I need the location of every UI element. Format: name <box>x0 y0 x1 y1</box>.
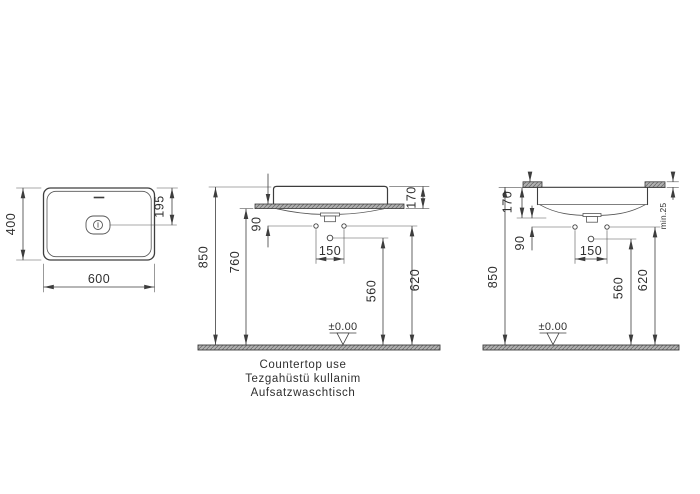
dim-620: 620 <box>408 269 422 291</box>
countertop-left <box>523 182 542 188</box>
caption-line-en: Countertop use <box>259 359 346 371</box>
dim-620: 620 <box>636 269 650 291</box>
countertop <box>255 204 404 209</box>
dim-760: 760 <box>228 251 242 273</box>
basin-body <box>274 186 388 204</box>
fixing-hole-left <box>314 224 318 228</box>
fixing-hole-right <box>342 224 346 228</box>
drain-body <box>587 217 598 223</box>
datum-symbol <box>337 333 349 345</box>
datum-label: ±0.00 <box>329 321 358 333</box>
plan-view: 400 600 195 <box>4 188 178 292</box>
drain-flange <box>321 213 340 216</box>
dim-560: 560 <box>365 280 379 302</box>
countertop-right <box>645 182 665 188</box>
spec-sheet: 400 600 195 850 760 <box>0 0 700 494</box>
dim-170: 170 <box>405 186 419 208</box>
drain-flange <box>583 214 601 217</box>
caption-line-de: Aufsatzwaschtisch <box>251 387 356 399</box>
side-view: 850 170 90 min.25 620 560 150 ±0.00 <box>483 172 679 350</box>
dim-170: 170 <box>501 191 515 213</box>
dim-195: 195 <box>153 195 167 217</box>
dim-560: 560 <box>612 277 626 299</box>
drain-body <box>325 216 336 222</box>
caption-line-tr: Tezgahüstü kullanim <box>245 373 361 385</box>
datum-label: ±0.00 <box>539 321 568 333</box>
dim-min25: min.25 <box>658 203 668 230</box>
mixer-hole <box>327 235 333 241</box>
mixer-hole <box>588 236 594 242</box>
dim-850: 850 <box>486 266 500 288</box>
dim-90: 90 <box>513 236 527 251</box>
dim-150: 150 <box>319 244 341 258</box>
floor-line <box>483 345 679 350</box>
dim-90: 90 <box>250 217 264 232</box>
fixing-hole-left <box>573 225 577 229</box>
caption: Countertop use Tezgahüstü kullanim Aufsa… <box>245 359 361 399</box>
floor-line <box>198 345 440 350</box>
dim-600: 600 <box>88 272 110 286</box>
dim-850: 850 <box>197 246 211 268</box>
technical-drawing: 400 600 195 850 760 <box>0 0 700 494</box>
fixing-hole-right <box>605 225 609 229</box>
front-view: 850 760 90 170 620 560 150 ±0.00 <box>197 174 441 350</box>
datum-symbol <box>547 333 559 345</box>
dim-150: 150 <box>580 244 602 258</box>
dim-400: 400 <box>4 213 18 235</box>
